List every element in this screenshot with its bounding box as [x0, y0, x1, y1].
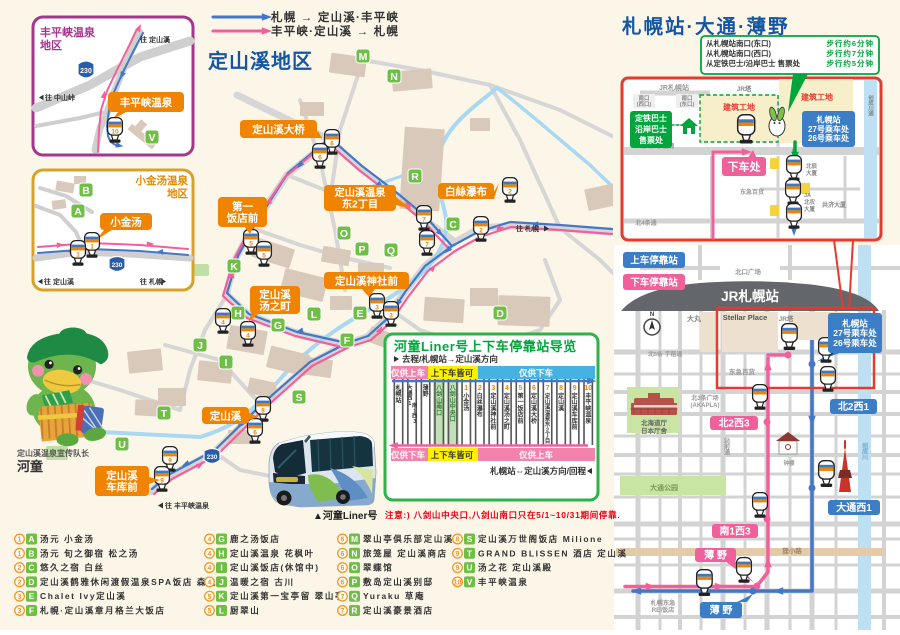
- svg-text:3: 3: [18, 594, 22, 601]
- svg-text:北海道厅: 北海道厅: [641, 418, 668, 427]
- svg-text:上车停靠站: 上车停靠站: [630, 254, 678, 266]
- svg-text:N: N: [390, 71, 398, 83]
- svg-text:从定铁巴士/沿岸巴士 售票处: 从定铁巴士/沿岸巴士 售票处: [706, 58, 801, 68]
- svg-text:定山溪温泉: 定山溪温泉: [334, 186, 387, 199]
- svg-text:10: 10: [454, 580, 462, 587]
- svg-text:Chalet Ivy定山溪: Chalet Ivy定山溪: [40, 591, 126, 601]
- svg-text:丰平峡·定山溪 → 札幌: 丰平峡·定山溪 → 札幌: [271, 24, 399, 38]
- svg-text:S: S: [295, 392, 302, 404]
- svg-text:车库前: 车库前: [106, 481, 138, 494]
- svg-text:北辰: 北辰: [806, 162, 818, 170]
- svg-text:札幌站⇔定山溪方向/回程: 札幌站⇔定山溪方向/回程: [489, 466, 586, 476]
- svg-text:A: A: [28, 534, 34, 544]
- svg-text:2: 2: [478, 385, 482, 392]
- svg-text:B: B: [82, 185, 90, 197]
- svg-text:Q: Q: [351, 591, 358, 601]
- svg-text:薄野: 薄野: [423, 384, 429, 398]
- svg-text:步行约7分钟: 步行约7分钟: [826, 48, 874, 58]
- svg-text:河童: 河童: [17, 459, 43, 474]
- svg-text:I: I: [220, 563, 222, 573]
- svg-text:5: 5: [262, 253, 266, 260]
- svg-text:定山溪温泉 花枫叶: 定山溪温泉 花枫叶: [229, 548, 315, 558]
- svg-text:定山溪地区: 定山溪地区: [208, 49, 313, 73]
- svg-text:八剑山中央口: 八剑山中央口: [449, 385, 457, 423]
- svg-text:3: 3: [18, 608, 22, 615]
- svg-text:去程/札幌站→定山溪方向: 去程/札幌站→定山溪方向: [402, 354, 498, 364]
- svg-text:J: J: [197, 340, 203, 352]
- svg-text:下车停靠站: 下车停靠站: [630, 276, 678, 288]
- svg-text:C: C: [28, 563, 34, 573]
- svg-text:汤元 旬之御宿 松之汤: 汤元 旬之御宿 松之汤: [40, 548, 139, 558]
- svg-text:9: 9: [168, 458, 172, 465]
- svg-text:温暖之宿 古川: 温暖之宿 古川: [230, 577, 295, 587]
- svg-text:定山溪神社前: 定山溪神社前: [489, 392, 497, 431]
- svg-text:6: 6: [341, 580, 345, 587]
- svg-text:N: N: [351, 548, 357, 558]
- svg-text:大厦: 大厦: [804, 205, 816, 213]
- svg-text:4: 4: [208, 537, 212, 544]
- svg-text:悠久之宿 白丝: 悠久之宿 白丝: [39, 563, 105, 573]
- svg-text:厨翠山: 厨翠山: [230, 606, 260, 616]
- svg-text:D: D: [496, 308, 504, 320]
- svg-text:D: D: [28, 577, 34, 587]
- svg-text:9: 9: [160, 478, 164, 485]
- svg-text:大通公园: 大通公园: [650, 483, 678, 492]
- svg-text:往 札幌: 往 札幌: [516, 224, 539, 233]
- svg-text:JR塔: JR塔: [737, 84, 752, 93]
- svg-text:▲河童Liner号: ▲河童Liner号: [313, 509, 377, 522]
- svg-text:上下车皆可: 上下车皆可: [431, 368, 474, 378]
- svg-text:GRAND BLISSEN 酒店 定山溪: GRAND BLISSEN 酒店 定山溪: [478, 548, 628, 558]
- svg-text:5: 5: [518, 385, 522, 392]
- svg-text:丰平峡温泉: 丰平峡温泉: [478, 577, 529, 587]
- svg-text:汤之花 定山溪殿: 汤之花 定山溪殿: [478, 563, 553, 573]
- svg-text:翠蝶馆: 翠蝶馆: [363, 563, 393, 573]
- svg-text:M: M: [359, 51, 368, 63]
- svg-text:札幌站·大通·薄野: 札幌站·大通·薄野: [621, 15, 790, 38]
- svg-text:敷岛定山溪别邸: 敷岛定山溪别邸: [363, 577, 434, 587]
- svg-text:从札幌站南口(东口): 从札幌站南口(东口): [706, 38, 771, 48]
- svg-text:札幌 → 定山溪·丰平峡: 札幌 → 定山溪·丰平峡: [270, 10, 399, 24]
- svg-text:T: T: [161, 408, 168, 420]
- svg-text:7: 7: [341, 594, 345, 601]
- svg-text:地区: 地区: [167, 187, 188, 200]
- svg-text:札幌站: 札幌站: [841, 318, 868, 328]
- svg-text:P: P: [358, 244, 365, 256]
- svg-text:狸小路: 狸小路: [781, 546, 802, 555]
- svg-text:27号乘车处: 27号乘车处: [808, 124, 850, 134]
- svg-text:4: 4: [208, 565, 212, 572]
- svg-text:Q: Q: [387, 245, 395, 257]
- svg-text:L: L: [311, 309, 318, 321]
- svg-text:步行约5分钟: 步行约5分钟: [826, 58, 874, 68]
- svg-text:定山溪豪景酒店: 定山溪豪景酒店: [362, 606, 434, 616]
- svg-text:2: 2: [18, 580, 22, 587]
- svg-text:2: 2: [18, 565, 22, 572]
- svg-text:26号乘车处: 26号乘车处: [833, 338, 877, 348]
- svg-text:建筑工地: 建筑工地: [800, 92, 833, 102]
- svg-text:售票处: 售票处: [638, 135, 664, 145]
- svg-text:O: O: [351, 563, 358, 573]
- svg-text:定山溪: 定山溪: [209, 409, 242, 422]
- svg-text:鹿之汤饭店: 鹿之汤饭店: [229, 534, 281, 544]
- svg-text:定山溪大桥: 定山溪大桥: [251, 123, 305, 136]
- svg-text:南1西3: 南1西3: [719, 525, 751, 538]
- svg-text:第一: 第一: [232, 200, 253, 213]
- svg-text:6: 6: [341, 551, 345, 558]
- svg-text:南口: 南口: [681, 94, 692, 102]
- svg-text:F: F: [344, 335, 351, 347]
- svg-text:定山溪温泉东2丁目: 定山溪温泉东2丁目: [544, 392, 551, 445]
- svg-text:下车处: 下车处: [728, 160, 762, 174]
- svg-text:V: V: [467, 577, 473, 587]
- svg-text:V: V: [148, 132, 155, 144]
- svg-text:6: 6: [253, 430, 257, 437]
- svg-text:北农: 北农: [804, 198, 816, 206]
- svg-text:钟楼: 钟楼: [783, 459, 795, 467]
- svg-text:东急百货: 东急百货: [740, 188, 764, 196]
- svg-text:大厦: 大厦: [806, 169, 818, 177]
- svg-text:旅笼屋 定山溪商店: 旅笼屋 定山溪商店: [362, 548, 448, 558]
- svg-text:K: K: [230, 261, 238, 273]
- svg-text:1: 1: [90, 244, 94, 251]
- svg-text:定山溪饭店(休馆中): 定山溪饭店(休馆中): [229, 563, 320, 573]
- svg-text:往 丰平峡温泉: 往 丰平峡温泉: [165, 501, 210, 510]
- svg-text:8: 8: [261, 408, 265, 415]
- svg-text:白絲瀑布: 白絲瀑布: [445, 185, 487, 198]
- svg-text:翠山亭俱乐部定山溪: 翠山亭俱乐部定山溪: [363, 534, 454, 544]
- svg-text:G: G: [218, 534, 225, 544]
- svg-text:饭店前: 饭店前: [226, 212, 259, 225]
- svg-text:4: 4: [208, 551, 212, 558]
- svg-text:共济大厦: 共济大厦: [822, 201, 847, 209]
- svg-text:定山溪大桥: 定山溪大桥: [530, 392, 538, 425]
- svg-text:小金汤: 小金汤: [462, 392, 470, 412]
- svg-text:从札幌站南口(西口): 从札幌站南口(西口): [706, 48, 771, 58]
- svg-text:小金汤温泉: 小金汤温泉: [135, 174, 189, 187]
- svg-text:JR塔: JR塔: [779, 314, 794, 323]
- svg-text:定山溪第一宝亭留 翠山亭: 定山溪第一宝亭留 翠山亭: [229, 591, 345, 601]
- svg-text:定山溪鹤雅休闲渡假温泉SPA饭店 森之謌: 定山溪鹤雅休闲渡假温泉SPA饭店 森之謌: [39, 577, 227, 587]
- svg-text:沿岸巴士: 沿岸巴士: [635, 124, 667, 134]
- svg-text:E: E: [356, 308, 363, 320]
- svg-text:河童Liner号上下车停靠站导览: 河童Liner号上下车停靠站导览: [394, 339, 577, 354]
- svg-text:仅供上车: 仅供上车: [390, 368, 426, 378]
- svg-text:上下车皆可: 上下车皆可: [431, 450, 474, 460]
- svg-text:230: 230: [207, 454, 218, 461]
- svg-text:B: B: [28, 548, 34, 558]
- svg-text:定山溪汤之町: 定山溪汤之町: [503, 392, 511, 431]
- svg-text:5: 5: [249, 241, 253, 248]
- svg-text:注意:) 八剑山中央口,八剑山南口只在5/1~10/31期间: 注意:) 八剑山中央口,八剑山南口只在5/1~10/31期间停靠.: [385, 510, 620, 520]
- svg-text:S: S: [467, 534, 473, 544]
- svg-text:札幌站: 札幌站: [816, 115, 841, 125]
- svg-text:汤之町: 汤之町: [259, 300, 291, 313]
- svg-text:3: 3: [389, 313, 393, 320]
- svg-text:6: 6: [318, 155, 322, 162]
- svg-text:白丝瀑布: 白丝瀑布: [476, 392, 484, 419]
- svg-text:汤元 小金汤: 汤元 小金汤: [40, 534, 94, 544]
- svg-text:6: 6: [330, 141, 334, 148]
- svg-text:八剑山南口: 八剑山南口: [435, 385, 443, 417]
- svg-text:H: H: [218, 548, 224, 558]
- svg-text:JR札幌站: JR札幌站: [659, 83, 689, 92]
- svg-text:丰平峡温泉: 丰平峡温泉: [40, 25, 96, 39]
- svg-text:北口广场: 北口广场: [735, 267, 762, 276]
- svg-text:东急百货: 东急百货: [729, 367, 756, 376]
- svg-text:1: 1: [464, 385, 468, 392]
- svg-text:8: 8: [559, 385, 563, 392]
- svg-text:F: F: [29, 606, 34, 616]
- svg-text:1: 1: [18, 537, 22, 544]
- svg-text:7: 7: [546, 385, 550, 392]
- svg-text:4: 4: [505, 385, 509, 392]
- svg-text:3: 3: [375, 305, 379, 312]
- svg-text:7: 7: [341, 608, 345, 615]
- svg-text:定山溪: 定山溪: [557, 392, 565, 412]
- svg-text:地区: 地区: [40, 38, 62, 52]
- svg-text:A: A: [74, 206, 82, 218]
- svg-text:1: 1: [18, 551, 22, 558]
- svg-text:定山溪车库前: 定山溪车库前: [571, 392, 579, 431]
- svg-text:创成川通: 创成川通: [867, 94, 874, 118]
- svg-text:6: 6: [341, 565, 345, 572]
- svg-text:230: 230: [80, 68, 92, 75]
- svg-text:北2西1: 北2西1: [838, 400, 870, 413]
- svg-text:L: L: [219, 606, 224, 616]
- svg-text:大丸: 大丸: [687, 314, 702, 323]
- svg-text:大通西1: 大通西1: [836, 501, 872, 514]
- svg-text:仅供下车: 仅供下车: [518, 368, 554, 378]
- svg-text:北2西3: 北2西3: [718, 417, 750, 430]
- svg-text:(西口): (西口): [637, 100, 652, 108]
- svg-text:往 札幌: 往 札幌: [140, 277, 163, 286]
- svg-text:8: 8: [456, 537, 460, 544]
- svg-text:9: 9: [456, 551, 460, 558]
- svg-text:2: 2: [479, 228, 483, 235]
- svg-text:创成川: 创成川: [861, 442, 868, 461]
- svg-text:J: J: [219, 577, 224, 587]
- svg-text:U: U: [118, 439, 126, 451]
- svg-text:小金汤: 小金汤: [109, 215, 142, 228]
- svg-text:建筑工地: 建筑工地: [722, 102, 755, 112]
- svg-text:站前通: 站前通: [724, 437, 730, 456]
- svg-text:仅供上车: 仅供上车: [518, 450, 554, 460]
- svg-text:9: 9: [456, 565, 460, 572]
- svg-text:定山溪万世阁饭店 Milione: 定山溪万世阁饭店 Milione: [477, 534, 603, 544]
- svg-text:M: M: [351, 534, 358, 544]
- svg-text:2: 2: [508, 189, 512, 196]
- svg-text:定山溪温泉宣传队长: 定山溪温泉宣传队长: [16, 448, 90, 458]
- svg-text:南口: 南口: [638, 94, 649, 102]
- svg-text:第一饭店前: 第一饭店前: [516, 392, 523, 425]
- svg-text:3: 3: [491, 385, 495, 392]
- svg-text:O: O: [340, 228, 348, 240]
- svg-text:R: R: [411, 171, 419, 183]
- svg-text:定山溪: 定山溪: [105, 469, 138, 482]
- svg-text:G: G: [274, 320, 282, 332]
- svg-text:定山溪神社前: 定山溪神社前: [334, 274, 398, 287]
- svg-text:丰平峡温泉: 丰平峡温泉: [584, 392, 592, 425]
- svg-text:薄 野: 薄 野: [710, 604, 733, 617]
- svg-text:东2丁目: 东2丁目: [342, 197, 378, 210]
- svg-text:札幌东急: 札幌东急: [650, 599, 677, 607]
- svg-text:N: N: [650, 312, 654, 318]
- svg-text:6: 6: [532, 385, 536, 392]
- svg-text:K: K: [218, 591, 225, 601]
- svg-text:9: 9: [573, 385, 577, 392]
- svg-text:REI饭店: REI饭店: [652, 606, 675, 614]
- svg-text:26号乘车处: 26号乘车处: [808, 133, 850, 143]
- svg-text:札幌站: 札幌站: [394, 384, 401, 404]
- svg-text:7: 7: [425, 242, 429, 249]
- svg-text:27号乘车处: 27号乘车处: [833, 328, 877, 338]
- svg-text:(AKAPLA): (AKAPLA): [691, 403, 720, 409]
- svg-text:定山溪: 定山溪: [258, 288, 291, 301]
- svg-text:JR札幌站: JR札幌站: [721, 288, 779, 304]
- svg-text:1: 1: [76, 252, 80, 259]
- svg-text:5: 5: [208, 608, 212, 615]
- svg-text:4: 4: [246, 333, 250, 340]
- svg-text:日本厅舍: 日本厅舍: [641, 426, 668, 435]
- svg-text:P: P: [352, 577, 358, 587]
- svg-text:E: E: [29, 591, 35, 601]
- svg-text:H: H: [234, 308, 242, 320]
- svg-text:230: 230: [112, 262, 123, 269]
- svg-text:北3条广场: 北3条广场: [691, 394, 718, 402]
- svg-text:5: 5: [208, 594, 212, 601]
- svg-text:4: 4: [221, 320, 225, 327]
- svg-text:往 定山溪: 往 定山溪: [44, 277, 75, 286]
- svg-text:步行约6分钟: 步行约6分钟: [826, 38, 874, 48]
- svg-text:7: 7: [422, 217, 426, 224]
- svg-text:北5条·手稻通: 北5条·手稻通: [648, 350, 682, 358]
- svg-text:Yuraku 草庵: Yuraku 草庵: [363, 591, 425, 601]
- svg-text:U: U: [466, 563, 472, 573]
- svg-text:C: C: [449, 219, 457, 231]
- svg-text:6: 6: [341, 537, 345, 544]
- svg-text:定铁巴士: 定铁巴士: [634, 113, 667, 123]
- svg-text:10: 10: [584, 385, 592, 392]
- svg-text:JA: JA: [804, 193, 811, 199]
- svg-text:Stellar Place: Stellar Place: [723, 313, 768, 322]
- svg-text:仅供下车: 仅供下车: [390, 450, 426, 460]
- svg-text:T: T: [467, 548, 473, 558]
- svg-text:I: I: [225, 357, 228, 369]
- svg-text:往 中山峠: 往 中山峠: [45, 93, 75, 102]
- svg-text:薄 野: 薄 野: [704, 549, 727, 562]
- svg-text:札幌·定山溪章月格兰大饭店: 札幌·定山溪章月格兰大饭店: [39, 606, 166, 616]
- svg-text:10: 10: [111, 129, 119, 136]
- svg-text:4: 4: [208, 580, 212, 587]
- svg-text:北4条通: 北4条通: [635, 219, 656, 227]
- svg-text:丰平峡温泉: 丰平峡温泉: [120, 96, 173, 109]
- svg-text:(东口): (东口): [680, 100, 695, 108]
- svg-text:R: R: [351, 606, 357, 616]
